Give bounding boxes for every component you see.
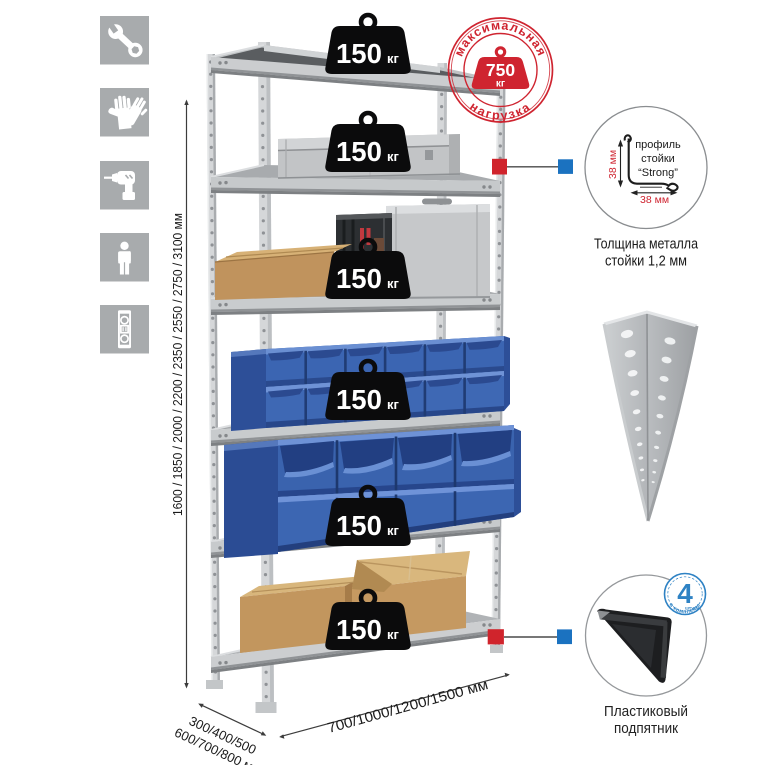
svg-text:Толщина металла: Толщина металла [594, 237, 699, 253]
svg-text:750: 750 [486, 60, 515, 80]
svg-text:кг: кг [387, 276, 400, 291]
svg-text:4: 4 [677, 578, 693, 609]
svg-text:кг: кг [387, 397, 400, 412]
svg-text:стойки: стойки [641, 153, 675, 165]
svg-text:кг: кг [387, 523, 400, 538]
svg-text:38 мм: 38 мм [607, 150, 619, 179]
svg-text:кг: кг [496, 79, 505, 90]
svg-text:1600 / 1850 / 2000 / 2200 / 23: 1600 / 1850 / 2000 / 2200 / 2350 / 2550 … [170, 213, 185, 516]
svg-text:150: 150 [336, 510, 382, 541]
svg-text:штуки: штуки [685, 606, 699, 611]
svg-text:“Strong”: “Strong” [638, 167, 678, 179]
svg-text:Пластиковый: Пластиковый [604, 704, 688, 720]
svg-text:подпятник: подпятник [614, 721, 679, 737]
svg-text:150: 150 [336, 136, 382, 167]
svg-text:150: 150 [336, 38, 382, 69]
svg-text:38 мм: 38 мм [640, 194, 669, 206]
svg-text:стойки 1,2 мм: стойки 1,2 мм [605, 254, 687, 270]
svg-text:кг: кг [387, 627, 400, 642]
svg-text:150: 150 [336, 614, 382, 645]
svg-text:кг: кг [387, 149, 400, 164]
svg-text:150: 150 [336, 384, 382, 415]
svg-text:профиль: профиль [635, 139, 681, 151]
svg-text:150: 150 [336, 263, 382, 294]
svg-text:кг: кг [387, 51, 400, 66]
